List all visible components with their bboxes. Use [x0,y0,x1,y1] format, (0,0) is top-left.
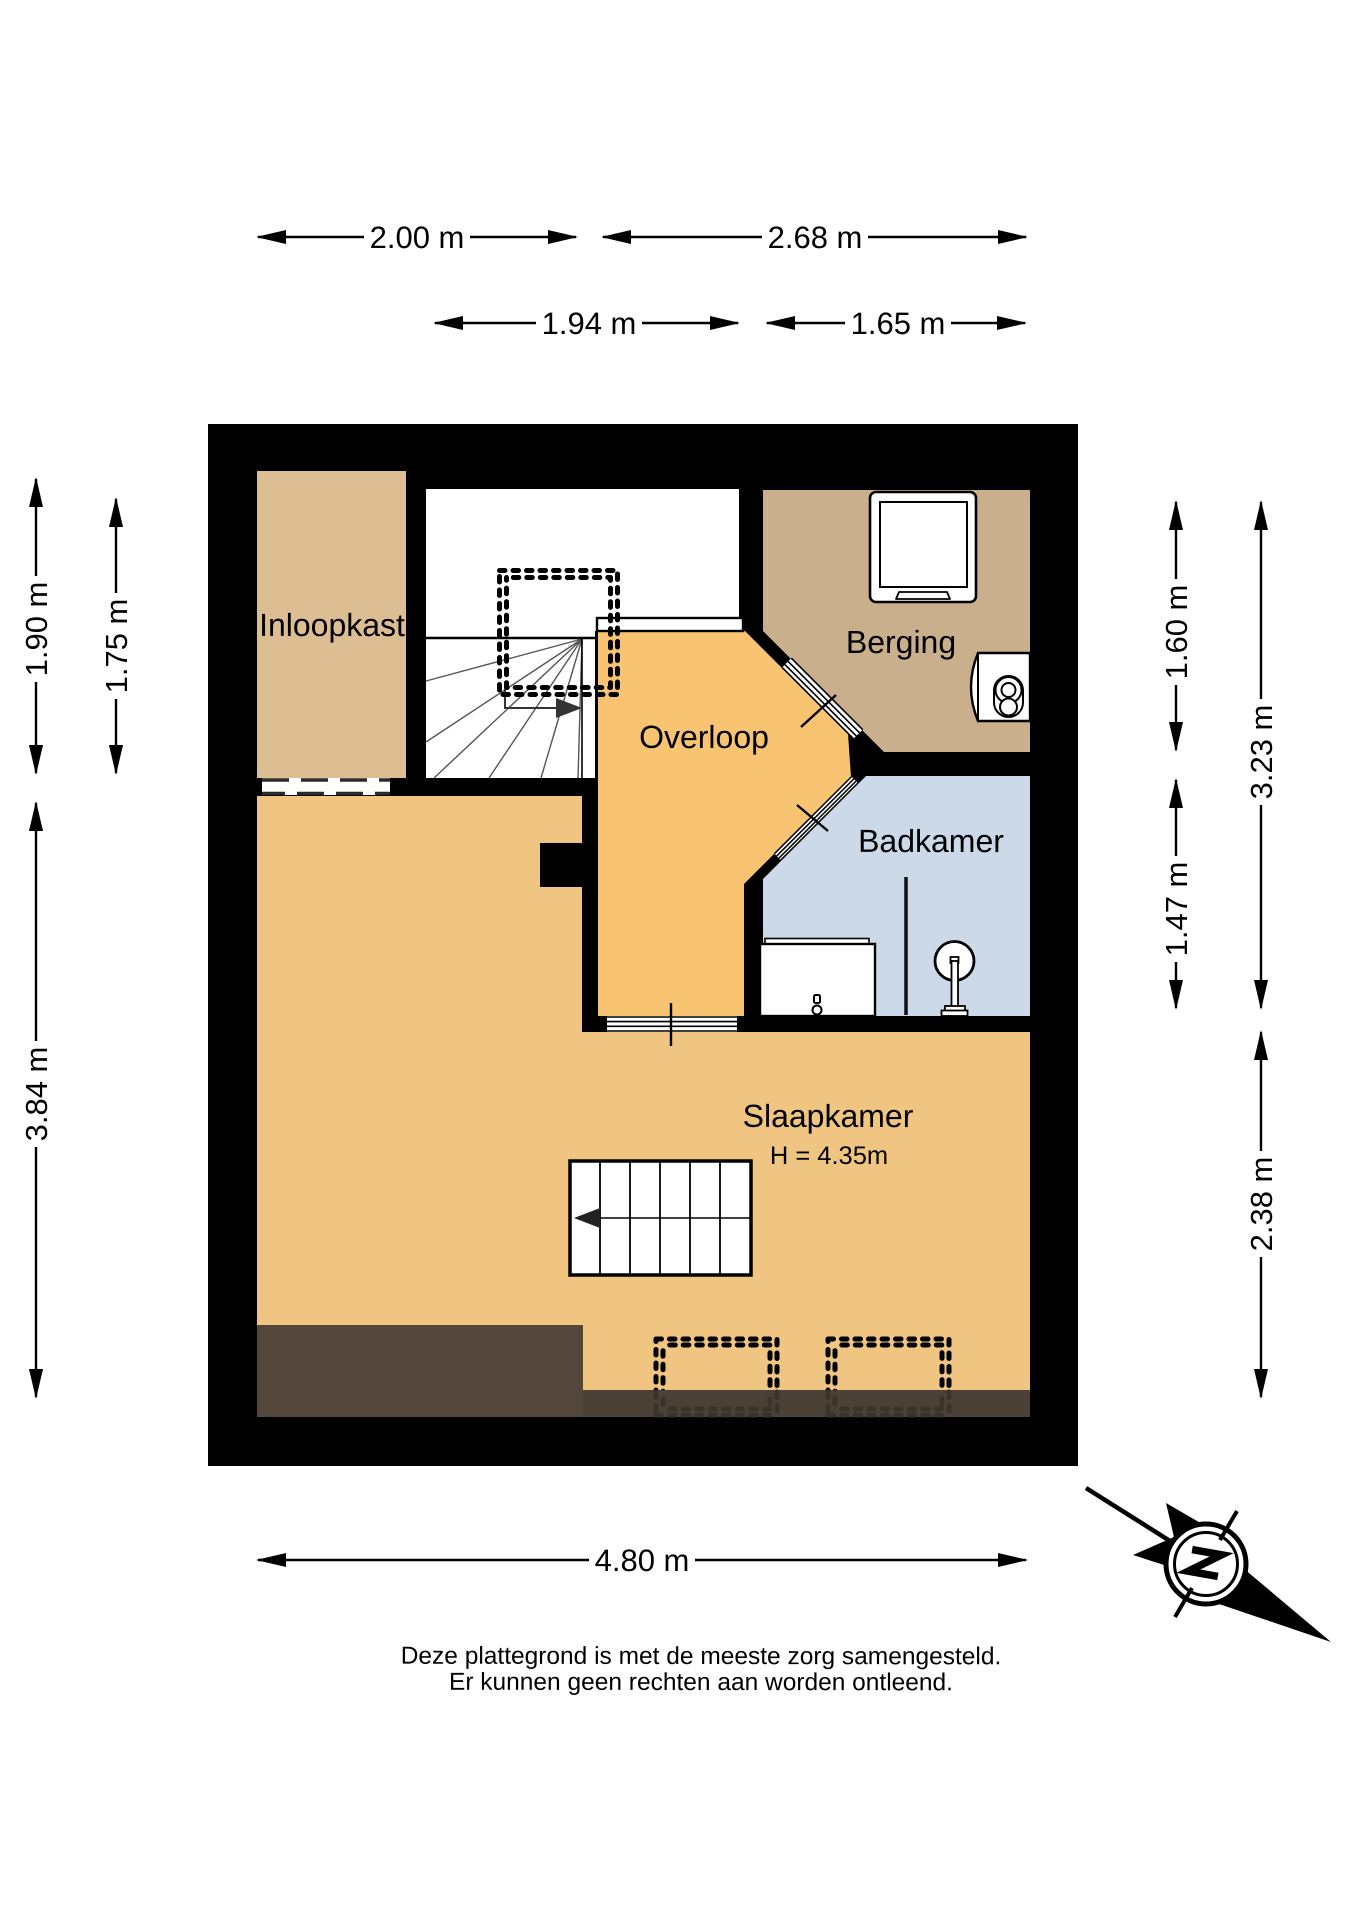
svg-text:Overloop: Overloop [639,719,769,755]
svg-text:Slaapkamer: Slaapkamer [743,1098,914,1134]
svg-text:1.47 m: 1.47 m [1159,862,1194,957]
svg-text:Badkamer: Badkamer [858,823,1004,859]
svg-text:2.38 m: 2.38 m [1244,1157,1279,1252]
svg-text:1.60 m: 1.60 m [1159,585,1194,680]
svg-text:1.90 m: 1.90 m [19,582,54,677]
svg-text:2.00 m: 2.00 m [370,220,465,255]
svg-text:1.94 m: 1.94 m [542,306,637,341]
svg-text:3.84 m: 3.84 m [19,1047,54,1142]
svg-text:1.75 m: 1.75 m [99,599,134,694]
svg-text:4.80 m: 4.80 m [595,1543,690,1578]
svg-text:Deze plattegrond is met de mee: Deze plattegrond is met de meeste zorg s… [401,1643,1002,1671]
svg-text:H = 4.35m: H = 4.35m [770,1142,888,1170]
svg-text:3.23 m: 3.23 m [1244,705,1279,800]
svg-text:1.65 m: 1.65 m [851,306,946,341]
svg-text:Inloopkast: Inloopkast [259,607,405,643]
svg-text:Er kunnen geen rechten aan wor: Er kunnen geen rechten aan worden ontlee… [449,1669,953,1697]
svg-text:2.68 m: 2.68 m [768,220,863,255]
svg-text:Berging: Berging [846,624,956,660]
